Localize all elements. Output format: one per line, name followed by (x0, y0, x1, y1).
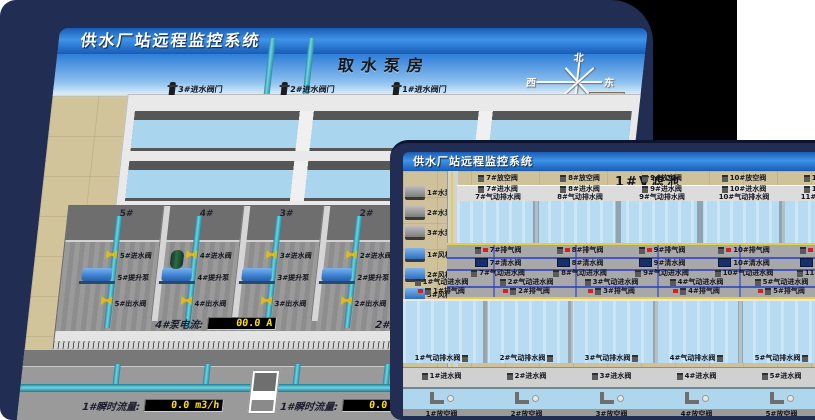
valve-item[interactable]: 10#进水阀 (703, 185, 785, 193)
valve-icon[interactable] (478, 186, 484, 193)
lift-pump-label: 5#提升泵 (117, 273, 150, 283)
valve-icon[interactable] (642, 186, 648, 193)
row-pneumatic-inlet-valves-low: 1#气动进水阀2#气动进水阀3#气动进水阀4#气动进水阀5#气动进水阀6#气动进… (403, 278, 815, 286)
valve-icon[interactable] (642, 175, 648, 182)
back-window-titlebar[interactable]: 供水厂站远程监控系统 (57, 28, 648, 54)
lift-pump-icon[interactable] (161, 268, 192, 281)
valve-item[interactable]: 8#清水阀 (539, 258, 621, 267)
valve-icon[interactable] (715, 270, 721, 277)
valve-item[interactable]: 11#清水阀 (785, 258, 815, 267)
valve-box-icon[interactable] (718, 258, 731, 267)
port-dot (787, 395, 794, 402)
inlet-valve-label: 4#进水阀 (199, 251, 232, 261)
inlet-valve-label: 5#进水阀 (119, 251, 152, 261)
valve-box-icon[interactable] (800, 258, 813, 267)
valve-item[interactable]: 5#气动排水阀 (739, 354, 815, 362)
valve-box-icon[interactable] (639, 258, 652, 267)
lift-pump-label: 4#提升泵 (197, 273, 230, 283)
elbow-pipe-icon (685, 392, 699, 404)
lift-pump-icon[interactable] (241, 268, 272, 281)
lift-pump-icon[interactable] (321, 268, 352, 281)
compass-west: 西 (525, 74, 537, 89)
pipe-item (569, 392, 654, 404)
valve-icon[interactable] (717, 355, 723, 362)
station-graphic (253, 373, 277, 391)
valve-item[interactable]: 5#放空阀 (739, 410, 815, 416)
valve-item[interactable]: 1#进水阀 (403, 372, 484, 380)
valve-item[interactable]: 2#进水阀 (484, 372, 569, 380)
valve-icon[interactable] (677, 373, 683, 380)
pump-icon[interactable] (405, 206, 425, 220)
valve-item[interactable]: 2#气动排水阀 (484, 354, 569, 362)
valve-icon[interactable] (765, 288, 771, 295)
pump-bays: 5# 5#进水阀 5#提升泵 5#出水阀 4# 4#进水阀 (74, 206, 408, 331)
port-dot (532, 395, 539, 402)
elbow-pipe-icon (770, 392, 784, 404)
valve-item[interactable]: 11#气动进水阀 (785, 269, 815, 277)
lift-pump-label: 2#提升泵 (357, 273, 390, 283)
valve-item[interactable]: 4#气动进水阀 (654, 278, 739, 286)
inlet-gate-valve[interactable]: 1#进水阀门 (393, 82, 506, 95)
valve-icon[interactable] (635, 270, 641, 277)
elbow-pipe-icon (515, 392, 529, 404)
valve-item[interactable]: 3#进水阀 (569, 372, 654, 380)
scene-title: 取水泵房 (337, 52, 432, 76)
compass-axis-ew (536, 81, 602, 83)
valve-item[interactable]: 7#排气阀 (457, 246, 539, 254)
pump-bay: 4# 4#进水阀 4#提升泵 4#出水阀 (154, 206, 248, 331)
air-pipe-horizontal (447, 243, 815, 245)
pump-base (319, 281, 355, 284)
valve-icon[interactable] (639, 247, 645, 254)
riser-stub (202, 364, 210, 386)
valve-item[interactable]: 3#放空阀 (569, 410, 654, 416)
riser-stub (292, 364, 300, 386)
valve-item[interactable]: 9#排气阀 (621, 246, 703, 254)
valve-icon[interactable] (415, 279, 421, 286)
valve-item[interactable]: 8#气动进水阀 (539, 269, 621, 277)
valve-item[interactable]: 7#气动进水阀 (457, 269, 539, 277)
valve-item[interactable]: 8#进水阀 (539, 185, 621, 193)
lift-pump-icon[interactable] (81, 268, 112, 281)
valve-icon[interactable] (804, 175, 810, 182)
valve-box-icon[interactable] (557, 258, 570, 267)
valve-icon[interactable] (722, 175, 728, 182)
valve-icon[interactable] (592, 373, 598, 380)
valve-item[interactable]: 5#进水阀 (739, 372, 815, 380)
valve-item[interactable]: 9#清水阀 (621, 258, 703, 267)
flow-readout: 1#瞬时流量: 0.0 m3/h (81, 398, 224, 413)
valve-item[interactable]: 10#排气阀 (703, 246, 785, 254)
outlet-valve-label: 2#出水阀 (354, 299, 387, 309)
front-window-titlebar[interactable]: 供水厂站远程监控系统 (403, 152, 815, 171)
pump-bay: 3# 3#进水阀 3#提升泵 3#出水阀 (234, 206, 328, 331)
valve-icon[interactable] (804, 186, 810, 193)
bay-number: 5# (86, 209, 167, 219)
valve-icon[interactable] (670, 279, 676, 286)
alarm-flag-icon (726, 248, 731, 252)
port-dot (702, 395, 709, 402)
inlet-gate-valve[interactable]: 3#进水阀门 (169, 82, 282, 95)
inlet-valve-label: 2#进水阀 (359, 251, 392, 261)
outlet-valve-label: 5#出水阀 (114, 299, 147, 309)
valve-icon[interactable] (471, 270, 477, 277)
valve-item[interactable]: 11#排气阀 (785, 246, 815, 254)
valve-item[interactable]: 5#排气阀 (739, 287, 815, 295)
valve-item[interactable]: 9#放空阀 (621, 174, 703, 182)
valve-icon[interactable] (507, 373, 513, 380)
port-dot (447, 395, 454, 402)
valve-item[interactable]: 7#清水阀 (457, 258, 539, 267)
blower-icon[interactable] (405, 248, 425, 262)
current-label: 4#泵电流: (155, 316, 209, 331)
valve-item[interactable]: 4#排气阀 (654, 287, 739, 295)
port-dot (617, 395, 624, 402)
riser-stub (112, 364, 120, 386)
pump-base (159, 281, 195, 284)
alarm-flag-icon (647, 248, 652, 252)
row-top-inlet-valves: 7#进水阀8#进水阀9#进水阀10#进水阀11#进水阀12#进水阀 (457, 185, 815, 193)
flow-label: 1#瞬时流量: (279, 398, 343, 413)
row-vent-valves-low: 1#排气阀2#排气阀3#排气阀4#排气阀5#排气阀6#排气阀 (403, 287, 815, 295)
valve-item[interactable]: 10#清水阀 (703, 258, 785, 267)
valve-icon[interactable] (547, 355, 553, 362)
row-top-drain-valves: 7#放空阀8#放空阀9#放空阀10#放空阀11#放空阀12#放空阀 (457, 174, 815, 182)
pump-station-icon[interactable] (247, 370, 280, 414)
pump-icon[interactable] (405, 226, 425, 240)
inlet-gate-valve[interactable]: 2#进水阀门 (281, 82, 394, 95)
valve-icon[interactable] (557, 247, 563, 254)
valve-item[interactable]: 10#气动进水阀 (703, 269, 785, 277)
valve-item[interactable]: 1#放空阀 (403, 410, 484, 416)
valve-item[interactable]: 8#放空阀 (539, 174, 621, 182)
valve-item[interactable]: 2#排气阀 (484, 287, 569, 295)
valve-icon[interactable] (632, 355, 638, 362)
valve-icon[interactable] (560, 186, 566, 193)
valve-icon[interactable] (510, 288, 516, 295)
flow-led-display: 0.0 m3/h (144, 399, 224, 412)
pipe-item (484, 392, 569, 404)
gate-valve-label: 1#进水阀门 (402, 84, 447, 95)
valve-icon[interactable] (797, 270, 803, 277)
valve-item[interactable]: 8#排气阀 (539, 246, 621, 254)
inlet-gate-valves: 3#进水阀门 2#进水阀门 1#进水阀门 (169, 82, 506, 95)
current-led-display: 00.0 A (207, 317, 277, 330)
valve-icon[interactable] (422, 373, 428, 380)
front-monitor-bezel: 供水厂站远程监控系统 1#V滤池 1#水泵 2#水泵 3#水泵 (390, 140, 815, 420)
valve-item[interactable]: 10#放空阀 (703, 174, 785, 182)
valve-icon[interactable] (425, 288, 431, 295)
valve-item[interactable]: 1#气动排水阀 (403, 354, 484, 362)
valve-item[interactable]: 11#进水阀 (785, 185, 815, 193)
alarm-flag-icon (483, 248, 488, 252)
lift-pump-label: 3#提升泵 (277, 273, 310, 283)
pump-base (79, 281, 115, 284)
row-pneumatic-inlet-valves-high: 7#气动进水阀8#气动进水阀9#气动进水阀10#气动进水阀11#气动进水阀12#… (457, 269, 815, 277)
valve-item[interactable]: 4#进水阀 (654, 372, 739, 380)
upper-filter-cells (457, 201, 815, 243)
outlet-valve-label: 4#出水阀 (194, 299, 227, 309)
valve-icon[interactable] (755, 279, 761, 286)
valve-item[interactable]: 2#气动进水阀 (484, 278, 569, 286)
pipe-item (403, 392, 484, 404)
valve-icon[interactable] (800, 247, 806, 254)
row-lower-drain-valves: 1#放空阀2#放空阀3#放空阀4#放空阀5#放空阀6#放空阀 (403, 410, 815, 416)
valve-icon[interactable] (478, 175, 484, 182)
gate-valve-label: 3#进水阀门 (178, 84, 223, 95)
elbow-pipe-icon (430, 392, 444, 404)
pump-base (239, 281, 275, 284)
pump-bay: 5# 5#进水阀 5#提升泵 5#出水阀 (74, 206, 168, 331)
valve-item[interactable]: 7#放空阀 (457, 174, 539, 182)
row-top-pneumatic-drain-valves: 7#气动排水阀8#气动排水阀9#气动排水阀10#气动排水阀11#气动排水阀12#… (457, 193, 815, 201)
valve-item[interactable]: 9#进水阀 (621, 185, 703, 193)
valve-icon[interactable] (585, 279, 591, 286)
valve-item[interactable]: 7#进水阀 (457, 185, 539, 193)
row-clear-water-valves: 7#清水阀8#清水阀9#清水阀10#清水阀11#清水阀12#清水阀 (457, 258, 815, 267)
valve-item[interactable]: 3#气动排水阀 (569, 354, 654, 362)
gate-valve-label: 2#进水阀门 (290, 84, 335, 95)
valve-icon[interactable] (462, 355, 468, 362)
bay-number: 4# (166, 209, 247, 219)
valve-item[interactable]: 5#气动进水阀 (739, 278, 815, 286)
inlet-valve-label: 3#进水阀 (279, 251, 312, 261)
valve-box-icon[interactable] (475, 258, 488, 267)
valve-item[interactable]: 2#放空阀 (484, 410, 569, 416)
alarm-flag-icon (503, 289, 508, 293)
alarm-flag-icon (588, 289, 593, 293)
valve-icon[interactable] (722, 186, 728, 193)
valve-item[interactable]: 4#放空阀 (654, 410, 739, 416)
valve-item[interactable]: 7#气动排水阀 (457, 193, 539, 201)
front-window-filter: 供水厂站远程监控系统 1#V滤池 1#水泵 2#水泵 3#水泵 (403, 152, 815, 416)
gate-valve-icon[interactable] (393, 82, 400, 95)
valve-item[interactable]: 9#气动排水阀 (621, 193, 703, 201)
valve-icon[interactable] (553, 270, 559, 277)
alarm-flag-icon (673, 289, 678, 293)
valve-item[interactable]: 10#气动排水阀 (703, 193, 785, 201)
valve-icon[interactable] (475, 247, 481, 254)
valve-icon[interactable] (680, 288, 686, 295)
alarm-flag-icon (418, 289, 423, 293)
alarm-flag-icon (808, 248, 813, 252)
pipe-item (654, 392, 739, 404)
valve-item[interactable]: 8#气动排水阀 (539, 193, 621, 201)
valve-item[interactable]: 1#气动进水阀 (403, 278, 484, 286)
valve-item[interactable]: 3#排气阀 (569, 287, 654, 295)
valve-icon[interactable] (802, 355, 808, 362)
current-readout: 4#泵电流: 00.0 A (155, 316, 278, 331)
valve-icon[interactable] (595, 288, 601, 295)
row-vent-valves-high: 7#排气阀8#排气阀9#排气阀10#排气阀11#排气阀12#排气阀 (457, 246, 815, 254)
alarm-flag-icon (758, 289, 763, 293)
filter-scene: 1#V滤池 1#水泵 2#水泵 3#水泵 (403, 171, 815, 416)
valve-item[interactable]: 11#放空阀 (785, 174, 815, 182)
pipe-item (739, 392, 815, 404)
compass-north: 北 (573, 49, 585, 64)
gate-valve-icon[interactable] (281, 82, 288, 95)
front-window-title: 供水厂站远程监控系统 (413, 155, 533, 168)
valve-item[interactable]: 11#气动排水阀 (785, 193, 815, 201)
valve-item[interactable]: 1#排气阀 (403, 287, 484, 295)
pump-icon[interactable] (405, 186, 425, 200)
valve-item[interactable]: 9#气动进水阀 (621, 269, 703, 277)
valve-item[interactable]: 3#气动进水阀 (569, 278, 654, 286)
station-graphic (251, 400, 274, 411)
outlet-valve-label: 3#出水阀 (274, 299, 307, 309)
valve-item[interactable]: 4#气动排水阀 (654, 354, 739, 362)
compass-east: 东 (603, 74, 615, 89)
row-outlet-pipes (403, 392, 815, 404)
row-lower-inlet-valves: 1#进水阀2#进水阀3#进水阀4#进水阀5#进水阀6#进水阀 (403, 372, 815, 380)
valve-icon[interactable] (560, 175, 566, 182)
valve-icon[interactable] (718, 247, 724, 254)
valve-icon[interactable] (762, 373, 768, 380)
valve-icon[interactable] (500, 279, 506, 286)
back-window-title: 供水厂站远程监控系统 (80, 31, 262, 50)
alarm-flag-icon (565, 248, 570, 252)
row-lower-pneumatic-drain-valves: 1#气动排水阀2#气动排水阀3#气动排水阀4#气动排水阀5#气动排水阀6#气动排… (403, 354, 815, 362)
gate-valve-icon[interactable] (169, 82, 176, 95)
flow-label: 1#瞬时流量: (81, 398, 145, 413)
elbow-pipe-icon (600, 392, 614, 404)
bay-number: 3# (246, 209, 327, 219)
desktop: 供水厂站远程监控系统 取水泵房 北 西 南 东 1#泵 轴承温度1: 轴承温度2… (0, 0, 815, 420)
